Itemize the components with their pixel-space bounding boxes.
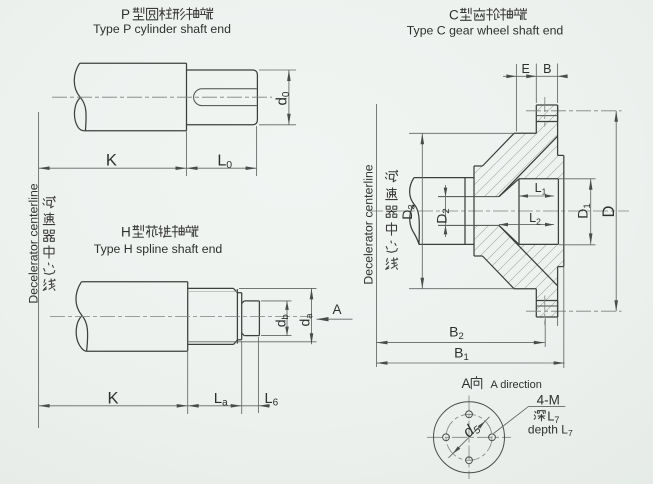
svg-text:depth L7: depth L7: [528, 422, 573, 438]
svg-text:Decelerator centerline: Decelerator centerline: [362, 164, 376, 284]
svg-text:K: K: [106, 152, 117, 170]
svg-text:A: A: [462, 376, 471, 391]
svg-text:H: H: [121, 225, 131, 240]
svg-text:K: K: [107, 389, 118, 407]
svg-text:P: P: [121, 7, 130, 22]
svg-text:Type H spline shaft end: Type H spline shaft end: [94, 242, 223, 256]
svg-text:B: B: [543, 62, 551, 76]
svg-text:E: E: [522, 62, 530, 76]
svg-text:Type C gear wheel shaft end: Type C gear wheel shaft end: [407, 24, 564, 38]
svg-text:C: C: [449, 8, 459, 23]
svg-text:A: A: [332, 302, 341, 317]
svg-text:D: D: [600, 205, 618, 217]
svg-text:4-M: 4-M: [537, 392, 560, 407]
svg-text:Decelerator centerline: Decelerator centerline: [27, 183, 41, 303]
svg-text:Type P cylinder shaft end: Type P cylinder shaft end: [93, 22, 231, 36]
svg-text:A direction: A direction: [491, 379, 542, 391]
